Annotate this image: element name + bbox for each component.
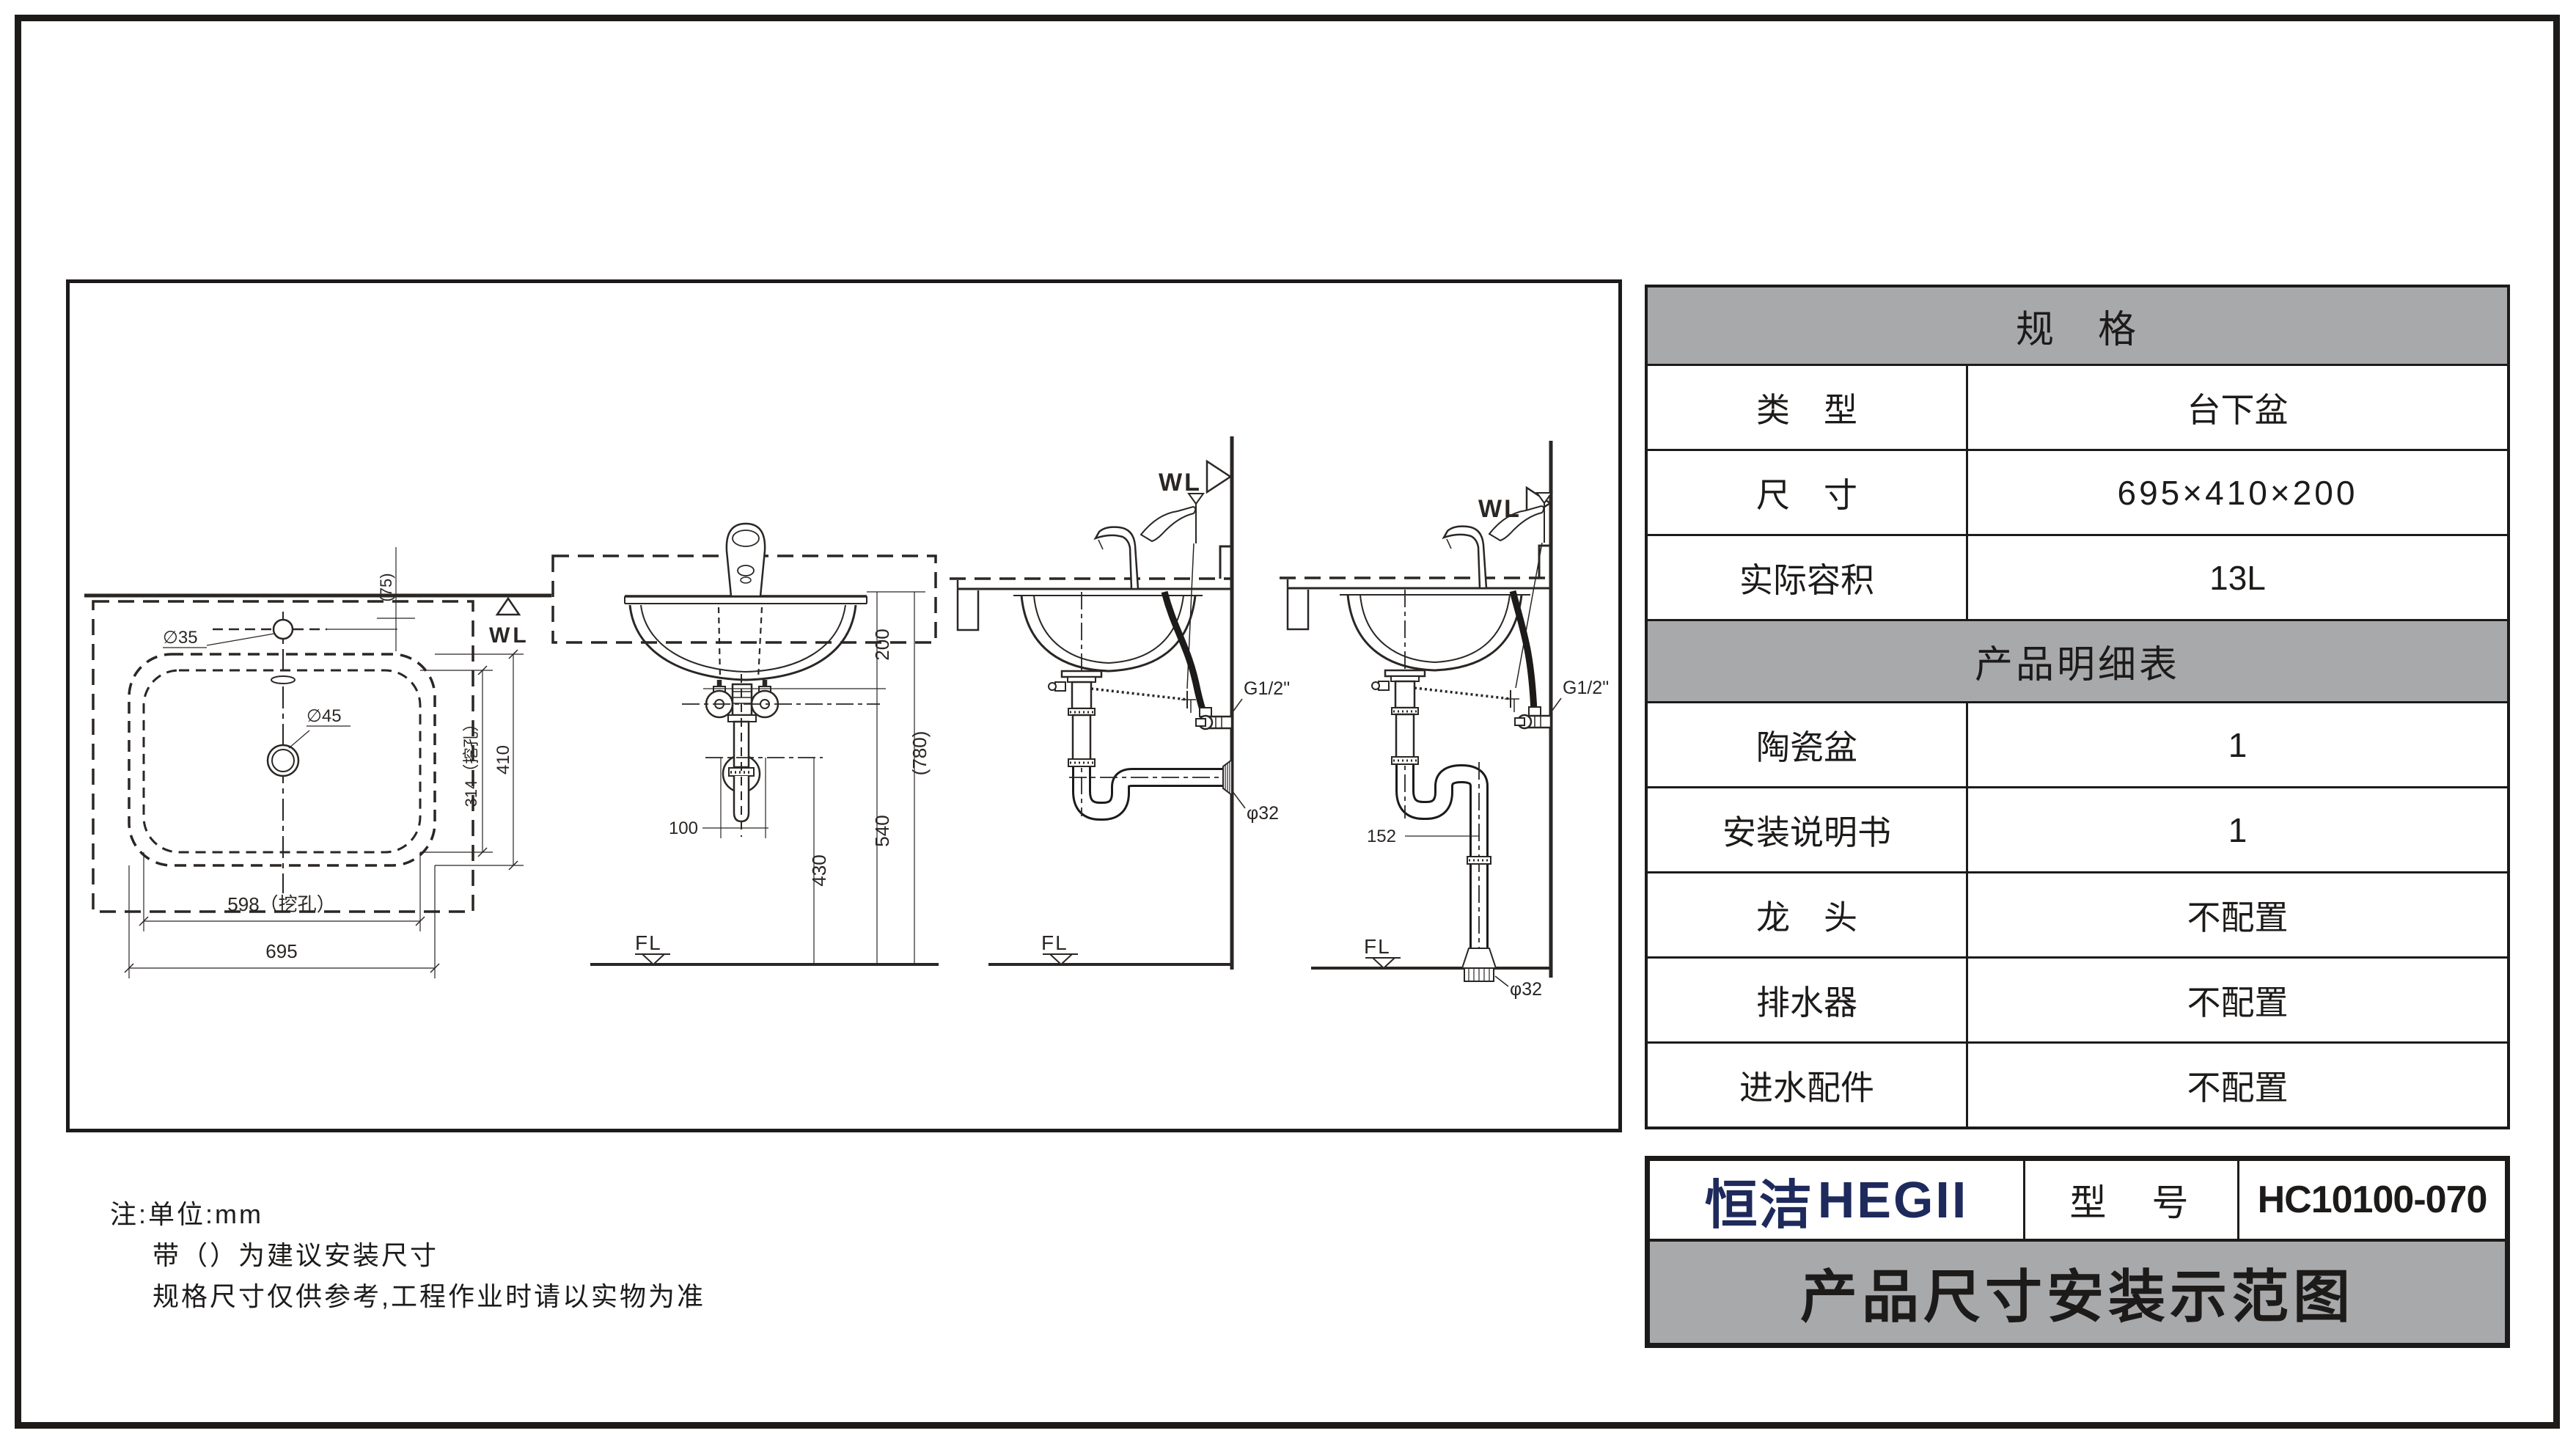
wl-triangle-icon: [1207, 461, 1230, 492]
row-value: 1: [1968, 703, 2507, 786]
faucet-handle: [1141, 507, 1195, 541]
dim-598-label: 598（挖孔）: [227, 893, 335, 915]
dim-780-label: (780): [909, 731, 931, 776]
faucet-hole: [274, 620, 293, 639]
fl-label: FL: [1041, 931, 1068, 954]
row-label: 进水配件: [1648, 1044, 1968, 1127]
table-row-faucet: 龙 头 不配置: [1648, 871, 2507, 956]
supply-hose: [1513, 591, 1534, 711]
row-label: 类 型: [1648, 366, 1968, 449]
dim-410-label: 410: [493, 745, 513, 774]
table-row-ceramic-basin: 陶瓷盆 1: [1648, 701, 2507, 786]
row-label: 龙 头: [1648, 873, 1968, 956]
note-line-2: 带（）为建议安装尺寸: [110, 1235, 1137, 1276]
detail-table-header: 产品明细表: [1648, 619, 2507, 701]
front-view-drawing: 100 430 200 540 (780) FL: [535, 463, 961, 976]
row-value: 13L: [1968, 536, 2507, 619]
dia35-label: ∅35: [163, 628, 198, 648]
bowl-inner: [1034, 596, 1184, 663]
row-value: 695×410×200: [1968, 451, 2507, 534]
wl-label: WL: [1159, 469, 1202, 497]
fl-triangle-icon: [1050, 954, 1072, 964]
brand-logo-cn: 恒洁: [1705, 1162, 1813, 1239]
row-label: 陶瓷盆: [1648, 703, 1968, 786]
table-row-capacity: 实际容积 13L: [1648, 534, 2507, 619]
note-line-1: 注:单位:mm: [110, 1194, 1137, 1235]
dim-152-label: 152: [1367, 827, 1396, 846]
phi32-label: φ32: [1247, 803, 1279, 824]
model-label: 型 号: [2025, 1161, 2239, 1239]
table-row-drainer: 排水器 不配置: [1648, 956, 2507, 1041]
popup-linkage: [1091, 689, 1188, 700]
dim-540-label: 540: [871, 815, 893, 846]
row-value: 台下盆: [1968, 366, 2507, 449]
fl-label: FL: [635, 931, 662, 954]
front-view-lines: [553, 524, 939, 964]
bowl-inner: [641, 605, 845, 672]
sheet-title-banner: 产品尺寸安装示范图: [1650, 1242, 2505, 1343]
table-row-install-manual: 安装说明书 1: [1648, 786, 2507, 871]
row-value: 不配置: [1968, 959, 2507, 1041]
plan-view-drawing: WL ∅35 ∅45 (75) 314（挖孔） 410 598（挖孔） 695: [81, 437, 579, 1016]
detail-table-header-text: 产品明细表: [1975, 634, 2180, 689]
title-block: 恒洁 HEGII 型 号 HC10100-070 产品尺寸安装示范图: [1645, 1156, 2510, 1348]
dim-200-label: 200: [871, 629, 893, 660]
wl-label: WL: [1478, 495, 1522, 523]
g12-label: G1/2": [1563, 678, 1609, 698]
row-label: 尺 寸: [1648, 451, 1968, 534]
supply-hose: [1164, 592, 1205, 716]
side-view-floor-drain-drawing: WL G1/2" 152 φ32 FL: [1276, 419, 1624, 998]
dim-314-label: 314（挖孔）: [462, 716, 480, 807]
spec-table-header-text: 规 格: [2016, 298, 2139, 353]
side-view-wall-drain-drawing: WL G1/2" φ32 FL: [946, 426, 1294, 987]
table-row-size: 尺 寸 695×410×200: [1648, 449, 2507, 534]
brand-logo: 恒洁 HEGII: [1650, 1161, 2025, 1239]
overflow-hole: [271, 676, 295, 684]
side-wall-lines: [950, 436, 1245, 970]
table-row-type: 类 型 台下盆: [1648, 364, 2507, 449]
spec-table-header: 规 格: [1648, 287, 2507, 364]
dia45-label: ∅45: [307, 706, 342, 726]
dim-100-label: 100: [669, 818, 698, 838]
dim-695-label: 695: [265, 940, 297, 962]
faucet-front: [727, 524, 765, 596]
model-value: HC10100-070: [2239, 1161, 2505, 1239]
note-line-3: 规格尺寸仅供参考,工程作业时请以实物为准: [110, 1276, 1137, 1317]
dim-75-label: (75): [377, 573, 395, 601]
row-value: 不配置: [1968, 1044, 2507, 1127]
popup-linkage: [1414, 688, 1511, 699]
fl-label: FL: [1364, 935, 1391, 958]
row-label: 排水器: [1648, 959, 1968, 1041]
fl-triangle-icon: [1373, 958, 1395, 968]
wl-label: WL: [489, 623, 529, 648]
notes: 注:单位:mm 带（）为建议安装尺寸 规格尺寸仅供参考,工程作业时请以实物为准: [110, 1194, 1137, 1317]
row-value: 1: [1968, 788, 2507, 871]
wl-triangle-icon: [497, 598, 519, 615]
dim-430-label: 430: [808, 854, 830, 886]
brand-logo-en: HEGII: [1818, 1171, 1969, 1229]
drawing-panel: WL ∅35 ∅45 (75) 314（挖孔） 410 598（挖孔） 695: [66, 279, 1622, 1132]
row-label: 实际容积: [1648, 536, 1968, 619]
bowl-inner: [1360, 595, 1510, 662]
table-row-inlet-fitting: 进水配件 不配置: [1648, 1041, 2507, 1127]
row-label: 安装说明书: [1648, 788, 1968, 871]
phi32-label: φ32: [1510, 979, 1542, 1000]
spec-table: 规 格 类 型 台下盆 尺 寸 695×410×200 实际容积 13L 产品明…: [1645, 285, 2510, 1129]
floor-outlet-cone: [1462, 948, 1496, 968]
row-value: 不配置: [1968, 873, 2507, 956]
fl-triangle-icon: [642, 954, 664, 964]
title-block-top-row: 恒洁 HEGII 型 号 HC10100-070: [1650, 1161, 2505, 1242]
